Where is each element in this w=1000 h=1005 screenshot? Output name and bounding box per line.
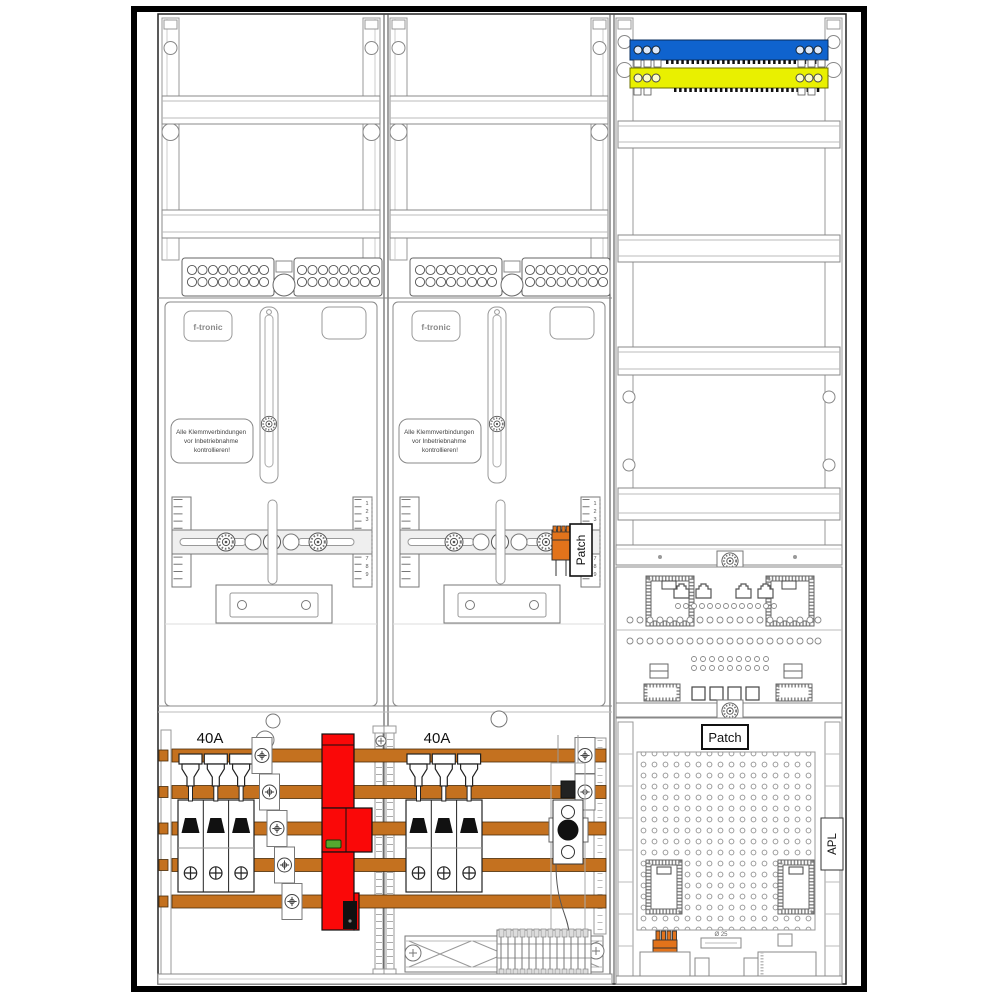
- cabinet-svg: f-tronic f-tronic Alle Klemmverbindungen…: [0, 0, 1000, 1000]
- apl-field: Patch APL Ø 25: [616, 718, 843, 984]
- svg-text:2: 2: [365, 509, 368, 515]
- knockout-circle: [266, 714, 280, 728]
- svg-text:1: 1: [593, 501, 596, 507]
- knockout-diameter-note: Ø 25: [714, 932, 728, 938]
- svg-text:3: 3: [365, 517, 368, 523]
- network-field: [616, 567, 842, 719]
- svg-text:8: 8: [365, 564, 368, 570]
- bottom-truss: [405, 929, 604, 977]
- right-section-edge: [616, 545, 842, 569]
- patch-label-middle: Patch: [574, 535, 588, 566]
- breaker-set-middle: [406, 754, 482, 892]
- svg-text:7: 7: [593, 556, 596, 562]
- svg-text:1: 1: [365, 501, 368, 507]
- neutral-terminal-rail: [630, 40, 828, 67]
- patch-label-right: Patch: [708, 730, 741, 745]
- bottom-edge-left-middle: [158, 974, 612, 984]
- svg-text:7: 7: [365, 556, 368, 562]
- breaker-rating-left: 40A: [197, 730, 224, 747]
- svg-text:2: 2: [593, 509, 596, 515]
- breaker-set-left: [178, 754, 254, 892]
- spd-slot: [343, 901, 357, 929]
- svg-text:8: 8: [593, 564, 596, 570]
- meter-panel-middle: [393, 302, 605, 706]
- terminal-comb: [497, 929, 591, 977]
- plate-cutout: [646, 860, 682, 914]
- spd-status-led: [326, 840, 341, 848]
- plate-cutout: [778, 860, 814, 914]
- patch-adapter-body: [552, 526, 570, 560]
- apl-label: APL: [827, 833, 839, 855]
- meter-panel-left: [165, 302, 377, 706]
- svg-text:9: 9: [593, 572, 596, 578]
- svg-text:3: 3: [593, 517, 596, 523]
- brand-logo-middle: f-tronic: [421, 322, 451, 332]
- brand-logo-left: f-tronic: [193, 322, 223, 332]
- breaker-rating-middle: 40A: [424, 730, 451, 747]
- svg-text:9: 9: [365, 572, 368, 578]
- knockout-circle: [491, 711, 507, 727]
- meter-cabinet-drawing: f-tronic f-tronic Alle Klemmverbindungen…: [0, 0, 1000, 1000]
